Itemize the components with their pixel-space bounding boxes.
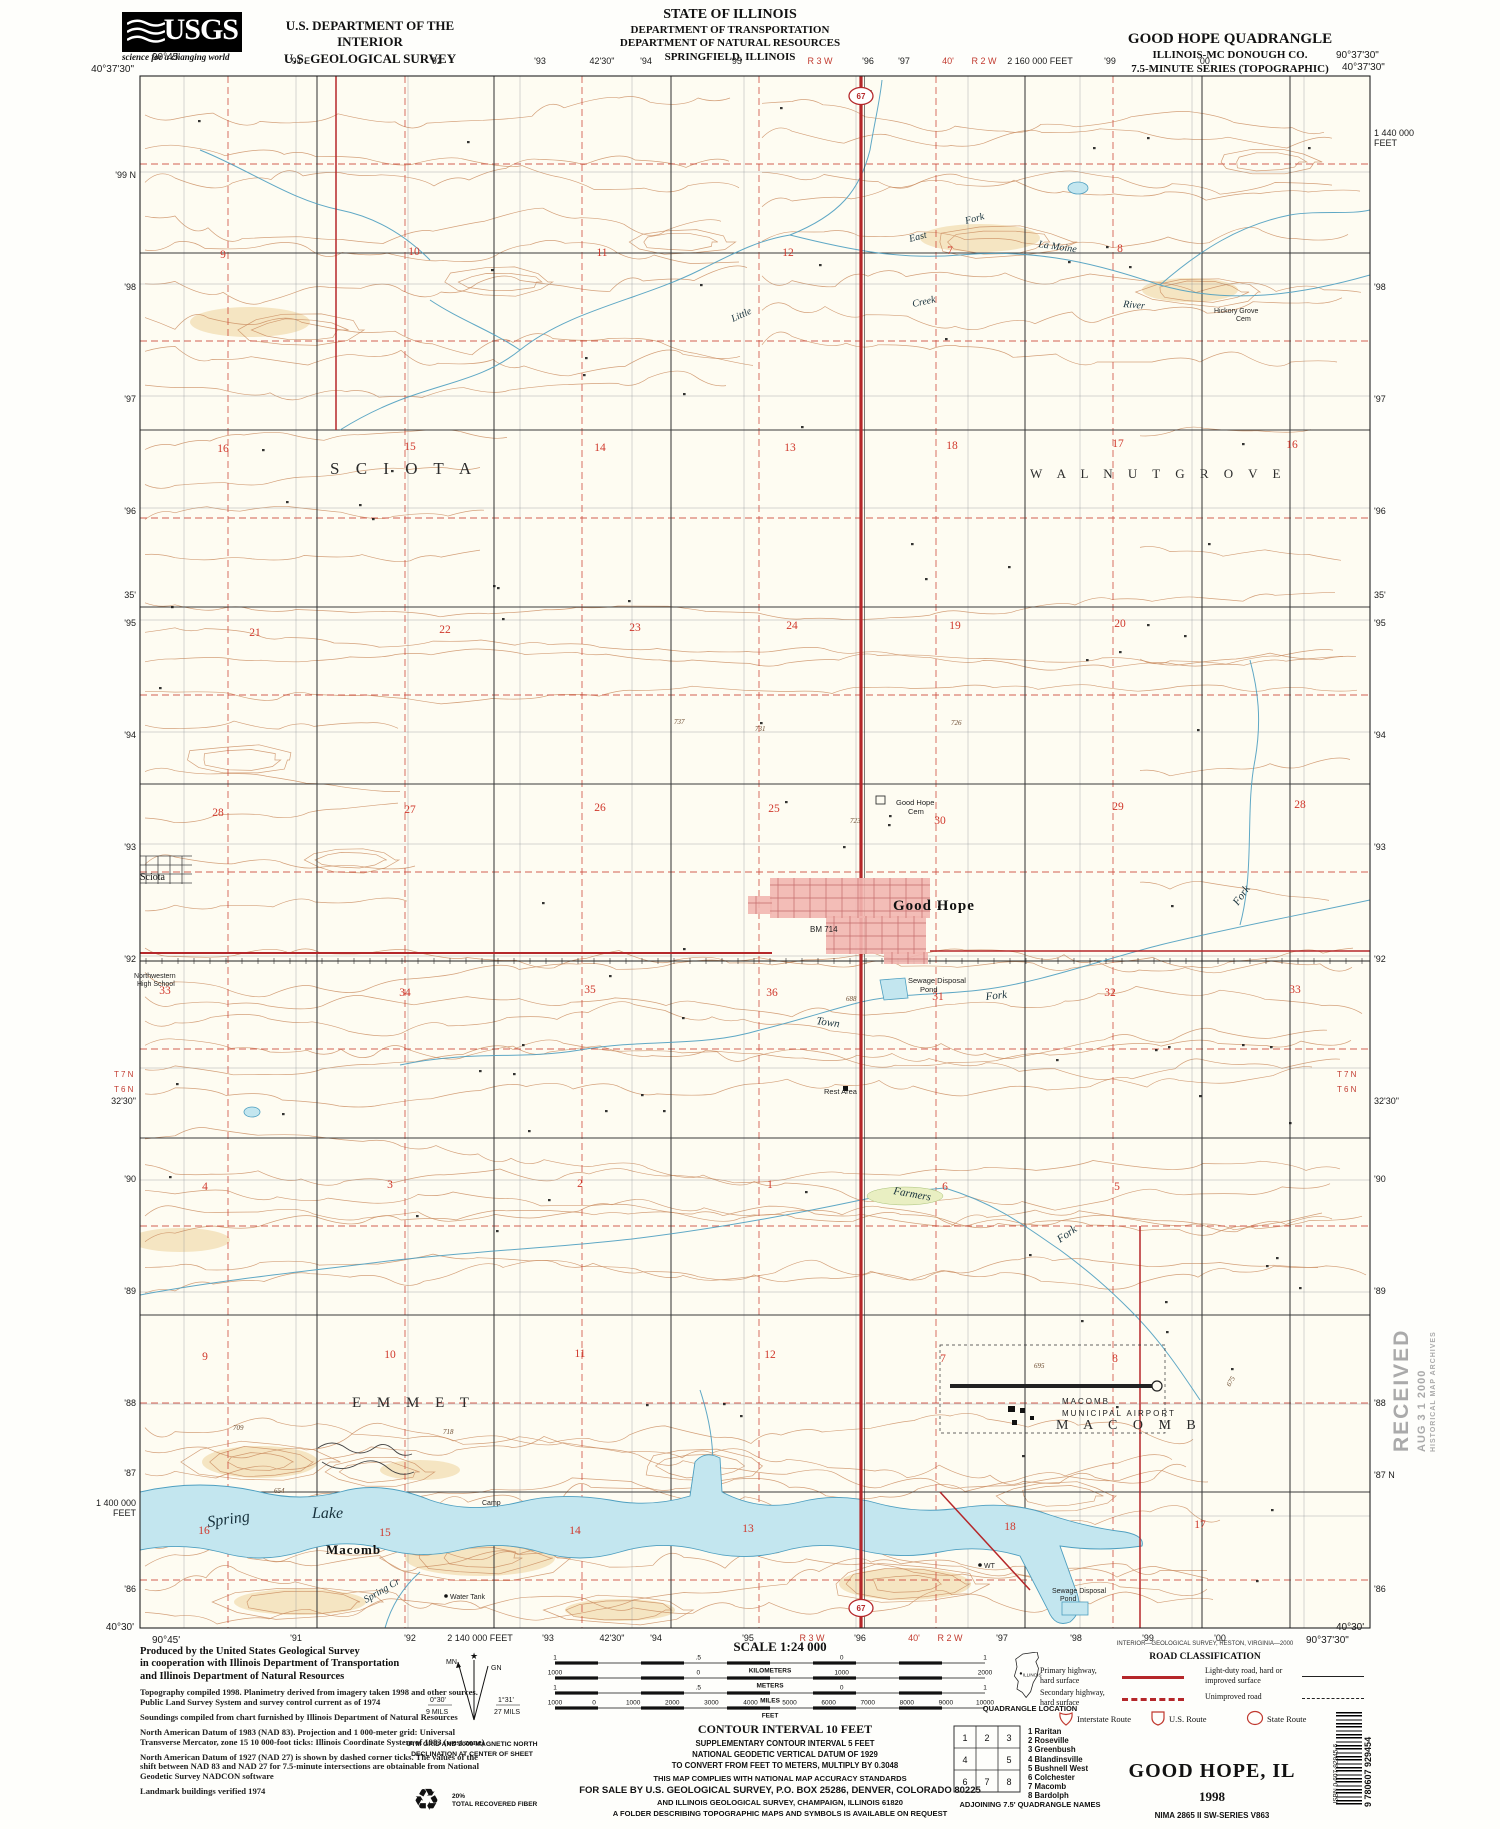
- section-number: 3: [387, 1179, 393, 1191]
- gn-label: GN: [491, 1665, 502, 1672]
- adjoining-quads-grid: 12345678: [952, 1724, 1022, 1794]
- unimproved-l1: Unimproved road: [1205, 1692, 1262, 1702]
- adj-name: 7 Macomb: [1028, 1782, 1088, 1791]
- scale-tick: 0: [840, 1655, 844, 1662]
- scale-tick: 7000: [860, 1700, 875, 1707]
- section-number: 8: [1117, 243, 1123, 255]
- received-stamp: RECEIVED AUG 3 1 2000 HISTORICAL MAP ARC…: [1390, 1266, 1448, 1452]
- map-label-el: 654: [274, 1487, 285, 1495]
- corner-coordinate: 40°37'30": [91, 64, 134, 75]
- section-number: 29: [1112, 801, 1124, 813]
- scale-title: SCALE 1:24 000: [545, 1639, 1015, 1655]
- route-shield-number: 67: [857, 1604, 866, 1613]
- secondary-l1: Secondary highway,: [1040, 1688, 1105, 1698]
- state-name: ILLINOIS: [1023, 1673, 1042, 1678]
- scale-tick: 0: [840, 1685, 844, 1692]
- section-number: 12: [782, 247, 794, 259]
- section-number: 7: [940, 1353, 946, 1365]
- section-number: 18: [946, 440, 958, 452]
- scale-tick: .5: [696, 1655, 702, 1662]
- section-number: 25: [768, 803, 780, 815]
- road-class-unimproved-label: Unimproved road: [1205, 1692, 1262, 1702]
- map-label-ft: Camp: [482, 1500, 501, 1507]
- margin-tick-label: '99: [1104, 56, 1116, 66]
- section-number: 20: [1114, 618, 1126, 630]
- margin-tick-label: '88: [124, 1398, 136, 1408]
- scale-tick: .5: [696, 1685, 702, 1692]
- section-number: 9: [202, 1351, 208, 1363]
- map-label-ham: Sciota: [140, 872, 166, 883]
- section-number: 23: [629, 622, 641, 634]
- margin-tick-label: '87: [124, 1468, 136, 1478]
- margin-tick-label: '94: [124, 730, 136, 740]
- scale-tick: 0: [592, 1700, 596, 1707]
- section-number: 28: [1294, 799, 1306, 811]
- section-number: 30: [934, 815, 946, 827]
- road-class-lightduty-label: Light-duty road, hard or improved surfac…: [1205, 1666, 1282, 1685]
- section-number: 14: [569, 1525, 581, 1537]
- state-route-label: State Route: [1267, 1714, 1306, 1724]
- sheet-name: GOOD HOPE, IL: [1092, 1760, 1332, 1783]
- section-number: 33: [1289, 984, 1301, 996]
- margin-tick-label: '98: [1374, 282, 1386, 292]
- contour-interval-note: CONTOUR INTERVAL 10 FEETSUPPLEMENTARY CO…: [560, 1722, 1010, 1770]
- map-label-ft: Good Hope: [896, 798, 934, 807]
- scale-tick: 5000: [782, 1700, 797, 1707]
- margin-tick-label: '95: [1374, 618, 1386, 628]
- map-label-twp: E M M E T: [352, 1395, 475, 1411]
- mn-label: MN: [446, 1659, 457, 1666]
- margin-tick-label: '96: [1374, 506, 1386, 516]
- scale-tick: 1: [553, 1685, 557, 1692]
- adjoining-cell-number: 1: [962, 1733, 967, 1743]
- margin-tick-label: '89: [124, 1286, 136, 1296]
- us-route-shield-icon: [1150, 1710, 1166, 1726]
- secondary-road-symbol: [1122, 1698, 1184, 1701]
- scale-tick: 1000: [548, 1670, 563, 1677]
- declination-caption-line2: DECLINATION AT CENTER OF SHEET: [392, 1750, 552, 1760]
- section-number: 27: [404, 804, 416, 816]
- corner-coordinate: 40°30': [1336, 1622, 1364, 1633]
- margin-tick-label: FEET: [1374, 138, 1398, 148]
- primary-l2: hard surface: [1040, 1676, 1097, 1686]
- section-number: 12: [764, 1349, 776, 1361]
- cx: NATIONAL GEODETIC VERTICAL DATUM OF 1929: [560, 1750, 1010, 1759]
- recycle-icon: ♻: [413, 1786, 440, 1816]
- section-number: 13: [784, 442, 796, 454]
- route-shield-number: 67: [857, 92, 866, 101]
- section-number: 5: [1114, 1181, 1120, 1193]
- margin-tick-label: '93: [1374, 842, 1386, 852]
- margin-tick-label: 35': [1374, 590, 1386, 600]
- map-label-ft: BM 714: [810, 925, 838, 934]
- map-label-fts: MUNICIPAL AIRPORT: [1062, 1409, 1176, 1418]
- sheet-series: NIMA 2865 II SW-SERIES V863: [1092, 1811, 1332, 1820]
- scale-tick: 2000: [665, 1700, 680, 1707]
- margin-tick-label: 40': [942, 56, 954, 66]
- section-number: 6: [942, 1181, 948, 1193]
- section-number: 17: [1194, 1519, 1206, 1531]
- margin-tick-label: '97: [898, 56, 910, 66]
- map-label-wat: River: [1122, 299, 1146, 312]
- publisher-block: GOOD HOPE, IL 1998 NIMA 2865 II SW-SERIE…: [1092, 1760, 1332, 1820]
- section-number: 28: [212, 807, 224, 819]
- section-number: 34: [399, 987, 411, 999]
- map-label-town: Macomb: [326, 1542, 381, 1557]
- section-number: 14: [594, 442, 606, 454]
- section-number: 33: [159, 985, 171, 997]
- scale-tick: 2000: [978, 1670, 993, 1677]
- comp-line: A FOLDER DESCRIBING TOPOGRAPHIC MAPS AND…: [460, 1809, 1100, 1818]
- state-route-shield-icon: [1246, 1710, 1264, 1726]
- adjoining-cell-number: 4: [962, 1755, 967, 1765]
- barcode-isbn: ISBN 0-607-92945-6: [1333, 1714, 1340, 1804]
- margin-tick-label: '91 E: [290, 56, 310, 66]
- scale-unit: KILOMETERS: [749, 1668, 792, 1675]
- scale-unit: METERS: [756, 1683, 784, 1690]
- lightduty-l1: Light-duty road, hard or: [1205, 1666, 1282, 1676]
- map-label-pl: T 6 N: [1337, 1085, 1357, 1094]
- secondary-l2: hard surface: [1040, 1698, 1105, 1708]
- margin-tick-label: '92: [124, 954, 136, 964]
- c0: CONTOUR INTERVAL 10 FEET: [560, 1722, 1010, 1737]
- section-number: 22: [439, 624, 451, 636]
- road-class-primary-label: Primary highway, hard surface: [1040, 1666, 1097, 1685]
- declination-caption-line1: UTM GRID AND 2000 MAGNETIC NORTH: [392, 1740, 552, 1750]
- map-label-ft: Northwestern: [134, 973, 176, 980]
- section-number: 13: [742, 1523, 754, 1535]
- cx: SUPPLEMENTARY CONTOUR INTERVAL 5 FEET: [560, 1739, 1010, 1748]
- scale-tick: 8000: [900, 1700, 915, 1707]
- map-label-ft: WT: [984, 1563, 996, 1570]
- declination-caption: UTM GRID AND 2000 MAGNETIC NORTH DECLINA…: [392, 1740, 552, 1759]
- scale-tick: 1: [553, 1655, 557, 1662]
- barcode-bars: [1336, 1712, 1362, 1806]
- adjoining-cell-number: 2: [984, 1733, 989, 1743]
- section-number: 26: [594, 802, 606, 814]
- scale-bars: 1.501KILOMETERS1000010002000METERS1.501M…: [545, 1654, 1015, 1718]
- margin-tick-label: '92: [1374, 954, 1386, 964]
- margin-tick-label: '92: [430, 56, 442, 66]
- section-number: 9: [220, 249, 226, 261]
- stamp-archive: HISTORICAL MAP ARCHIVES: [1430, 1266, 1437, 1452]
- scale-tick: 1000: [626, 1700, 641, 1707]
- section-number: 24: [786, 620, 798, 632]
- map-label-pl: T 7 N: [1337, 1070, 1357, 1079]
- margin-tick-label: 35': [124, 590, 136, 600]
- section-number: 32: [1104, 987, 1116, 999]
- section-number: 7: [947, 245, 953, 257]
- section-number: 16: [198, 1525, 210, 1537]
- margin-tick-label: '97: [1374, 394, 1386, 404]
- map-label-ft: Sewage Disposal: [908, 976, 966, 985]
- margin-tick-label: '90: [124, 1174, 136, 1184]
- primary-l1: Primary highway,: [1040, 1666, 1097, 1676]
- margin-tick-label: '95: [124, 618, 136, 628]
- sewage-pond: [880, 978, 908, 1000]
- margin-tick-label: 2 140 000 FEET: [447, 1633, 513, 1643]
- map-label-el: 709: [233, 1424, 244, 1432]
- section-number: 10: [384, 1349, 396, 1361]
- section-number: 10: [408, 246, 420, 258]
- section-number: 18: [1004, 1521, 1016, 1533]
- margin-tick-label: 1 440 000: [1374, 128, 1414, 138]
- section-number: 2: [577, 1178, 583, 1190]
- map-label-el: 737: [674, 718, 685, 726]
- corner-coordinate: 40°30': [106, 1622, 134, 1633]
- map-label-ft: Cem: [908, 807, 924, 816]
- section-number: 15: [404, 441, 416, 453]
- lightduty-road-symbol: [1302, 1676, 1364, 1677]
- adjoining-cell-number: 3: [1006, 1733, 1011, 1743]
- map-label-el: 726: [951, 719, 962, 727]
- section-number: 31: [932, 991, 944, 1003]
- stamp-received: RECEIVED: [1390, 1266, 1414, 1452]
- sheet-year: 1998: [1092, 1789, 1332, 1805]
- margin-tick-label: '86: [1374, 1584, 1386, 1594]
- margin-tick-label: '86: [124, 1584, 136, 1594]
- margin-tick-label: '92: [404, 1633, 416, 1643]
- margin-tick-label: '97: [124, 394, 136, 404]
- scale-tick: 1: [983, 1655, 987, 1662]
- section-number: 36: [766, 987, 778, 999]
- map-label-twp: M A C O M B: [1056, 1418, 1202, 1433]
- section-number: 4: [202, 1181, 208, 1193]
- map-label-ft: Rest Area: [824, 1087, 858, 1096]
- mn-mils: 9 MILS: [426, 1709, 449, 1716]
- scale-tick: 3000: [704, 1700, 719, 1707]
- section-number: 35: [584, 984, 596, 996]
- isbn-barcode: ISBN 0-607-92945-6 9 780607 929454: [1322, 1710, 1374, 1810]
- map-label-pl: T 7 N: [114, 1070, 134, 1079]
- map-label-ft: Hickory Grove: [1214, 308, 1258, 315]
- lightduty-l2: improved surface: [1205, 1676, 1282, 1686]
- section-number: 16: [1286, 439, 1298, 451]
- cx: TO CONVERT FROM FEET TO METERS, MULTIPLY…: [560, 1761, 1010, 1770]
- barcode-digits: 9 780607 929454: [1363, 1711, 1373, 1807]
- margin-tick-label: 42'30": [590, 56, 615, 66]
- interstate-shield-icon: [1058, 1710, 1074, 1726]
- adj-name: 4 Blandinsville: [1028, 1755, 1088, 1764]
- section-number: 15: [379, 1527, 391, 1539]
- adjoining-cell-number: 6: [962, 1777, 967, 1787]
- map-label-wat: Lake: [311, 1505, 343, 1522]
- corner-coordinate: 90°45': [152, 52, 180, 63]
- margin-tick-label: '00: [1198, 56, 1210, 66]
- margin-tick-label: '96: [124, 506, 136, 516]
- interstate-route-label: Interstate Route: [1077, 1714, 1131, 1724]
- scale-tick: 6000: [821, 1700, 836, 1707]
- primary-road-symbol: [1122, 1676, 1184, 1679]
- unimproved-road-symbol: [1302, 1698, 1364, 1699]
- scale-unit: FEET: [762, 1713, 779, 1719]
- section-number: 21: [249, 627, 261, 639]
- adj-name: 2 Roseville: [1028, 1736, 1088, 1745]
- margin-tick-label: '99 N: [115, 170, 136, 180]
- margin-tick-label: 32'30": [1374, 1096, 1399, 1106]
- quad-location-dot: [1020, 1672, 1022, 1674]
- corner-coordinate: 90°45': [152, 1635, 180, 1646]
- scale-tick: 1: [983, 1685, 987, 1692]
- corner-coordinate: 40°37'30": [1342, 62, 1385, 73]
- margin-tick-label: '96: [862, 56, 874, 66]
- margin-tick-label: 2 160 000 FEET: [1007, 56, 1073, 66]
- map-label-ft: Cem: [1236, 316, 1251, 323]
- map-label-ft: Pond: [1060, 1596, 1076, 1603]
- margin-tick-label: '88: [1374, 1398, 1386, 1408]
- section-number: 1: [767, 1179, 773, 1191]
- map-label-el: 695: [1034, 1362, 1045, 1370]
- adj-name: 3 Greenbush: [1028, 1745, 1088, 1754]
- adjoining-cell-number: 7: [984, 1777, 989, 1787]
- road-classification-title: ROAD CLASSIFICATION: [1040, 1652, 1370, 1662]
- margin-tick-label: R 2 W: [971, 56, 997, 66]
- gn-degrees: 1°31': [498, 1696, 514, 1704]
- map-label-el: 718: [443, 1428, 454, 1436]
- map-label-el: 688: [846, 995, 857, 1003]
- section-number: 16: [217, 443, 229, 455]
- adjoining-cell-number: 5: [1006, 1755, 1011, 1765]
- map-label-wat: Fork: [984, 989, 1009, 1003]
- margin-tick-label: FEET: [113, 1508, 137, 1518]
- map-label-town: Good Hope: [893, 898, 975, 914]
- margin-tick-label: '90: [1374, 1174, 1386, 1184]
- scale-tick: 1000: [548, 1700, 563, 1707]
- margin-tick-label: '94: [640, 56, 652, 66]
- adjoining-cell-number: 8: [1006, 1777, 1011, 1787]
- map-label-twp: W A L N U T G R O V E: [1030, 466, 1287, 481]
- true-north-star: ★: [470, 1651, 478, 1661]
- margin-tick-label: '89: [1374, 1286, 1386, 1296]
- margin-tick-label: '94: [1374, 730, 1386, 740]
- map-label-pl: T 6 N: [114, 1085, 134, 1094]
- adjoining-quads-names: 1 Raritan2 Roseville3 Greenbush4 Blandin…: [1028, 1727, 1088, 1801]
- topo-map: 6767'91 E'92'9342'30"'94'95R 3 W'96'9740…: [0, 0, 1500, 1829]
- adj-name: 6 Colchester: [1028, 1773, 1088, 1782]
- us-route-label: U.S. Route: [1169, 1714, 1207, 1724]
- scale-unit: MILES: [760, 1698, 781, 1705]
- margin-tick-label: R 3 W: [807, 56, 833, 66]
- margin-tick-label: '93: [534, 56, 546, 66]
- map-label-fts: MACOMB: [1062, 1397, 1110, 1406]
- usgs-topo-sheet: USGS science for a changing world U.S. D…: [0, 0, 1500, 1829]
- map-label-ft: Water Tank: [450, 1594, 486, 1601]
- section-number: 11: [574, 1348, 585, 1360]
- scale-tick: 4000: [743, 1700, 758, 1707]
- margin-tick-label: 32'30": [111, 1096, 136, 1106]
- section-number: 19: [949, 620, 961, 632]
- scale-tick: 1000: [834, 1670, 849, 1677]
- adj-name: 5 Bushnell West: [1028, 1764, 1088, 1773]
- map-label-twp: S C I O T A: [330, 459, 477, 478]
- scale-tick: 9000: [939, 1700, 954, 1707]
- margin-tick-label: '93: [124, 842, 136, 852]
- mn-degrees: 0°30': [430, 1696, 446, 1704]
- gn-mils: 27 MILS: [494, 1709, 520, 1716]
- margin-tick-label: '95: [730, 56, 742, 66]
- margin-tick-label: '87 N: [1374, 1470, 1395, 1480]
- margin-tick-label: '98: [124, 282, 136, 292]
- section-number: 11: [596, 247, 607, 259]
- margin-tick-label: '91: [290, 1633, 302, 1643]
- map-label-el: 731: [755, 725, 766, 733]
- adj-name: 1 Raritan: [1028, 1727, 1088, 1736]
- stamp-date: AUG 3 1 2000: [1416, 1266, 1428, 1452]
- corner-coordinate: 90°37'30": [1336, 50, 1379, 61]
- margin-tick-label: 1 400 000: [96, 1498, 136, 1508]
- map-label-ft: Sewage Disposal: [1052, 1588, 1107, 1595]
- declination-diagram: ★ MN GN 0°30' 9 MILS 1°31' 27 MILS: [408, 1650, 548, 1738]
- survey-credit-line: INTERIOR—GEOLOGICAL SURVEY, RESTON, VIRG…: [1040, 1641, 1370, 1647]
- scale-tick: 0: [697, 1670, 701, 1677]
- map-label-el: 723: [850, 817, 861, 825]
- road-class-secondary-label: Secondary highway, hard surface: [1040, 1688, 1105, 1707]
- section-number: 17: [1112, 438, 1124, 450]
- section-number: 8: [1112, 1353, 1118, 1365]
